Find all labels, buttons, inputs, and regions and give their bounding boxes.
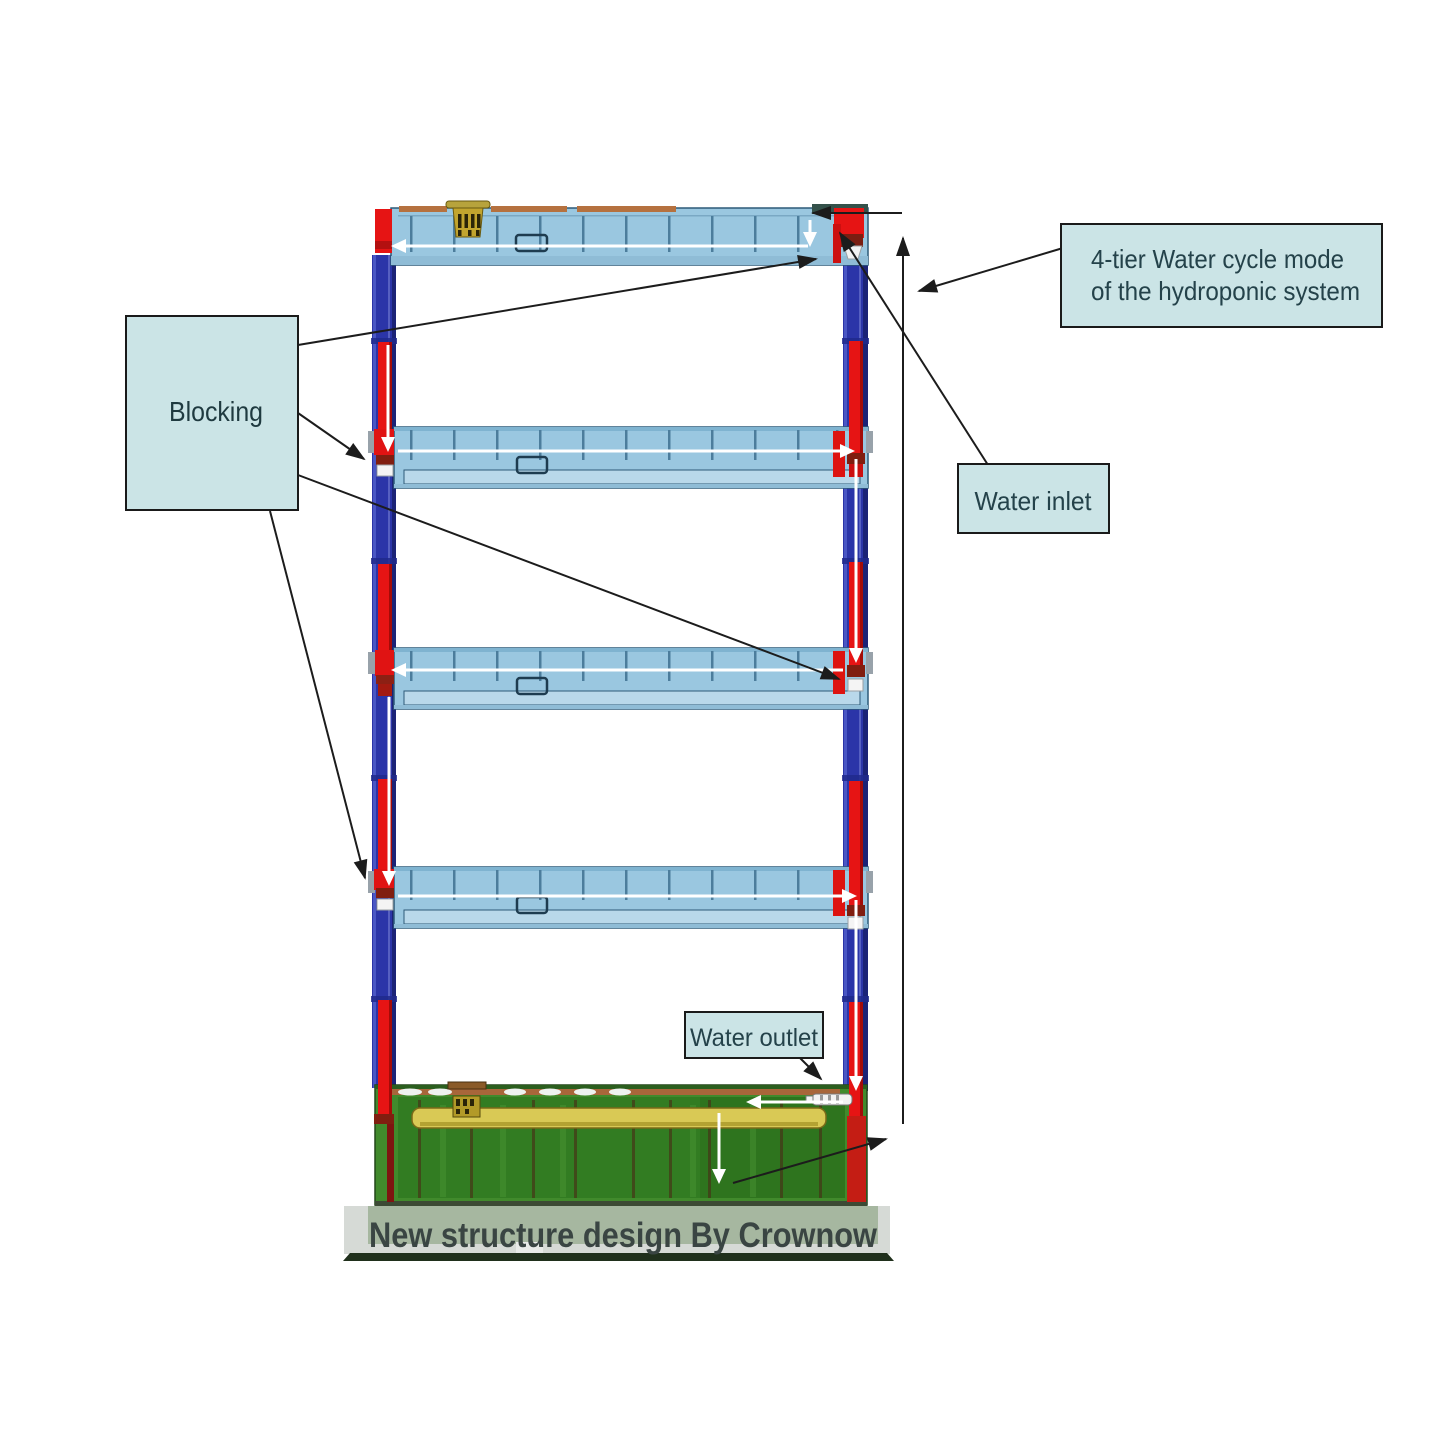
svg-text:New structure design By Crowno: New structure design By Crownow <box>369 1216 878 1255</box>
svg-text:of the hydroponic system: of the hydroponic system <box>1091 276 1360 306</box>
svg-text:Blocking: Blocking <box>169 396 263 427</box>
svg-text:Water outlet: Water outlet <box>690 1024 818 1052</box>
svg-text:Water inlet: Water inlet <box>975 486 1093 516</box>
svg-text:4-tier Water cycle mode: 4-tier Water cycle mode <box>1091 244 1344 274</box>
